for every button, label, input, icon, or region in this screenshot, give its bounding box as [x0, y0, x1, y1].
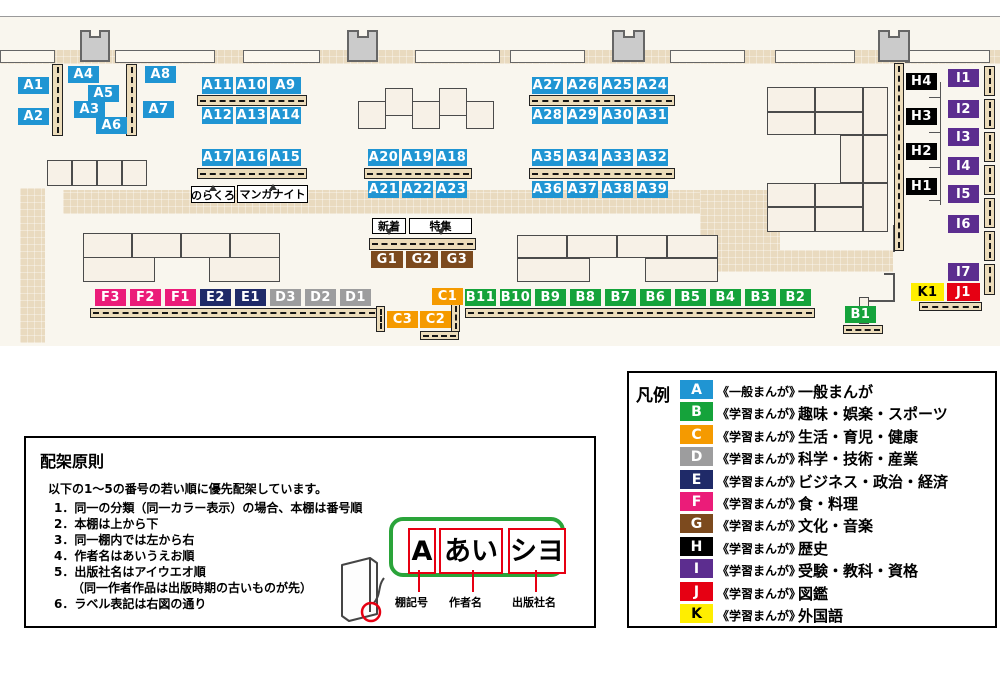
table	[122, 160, 147, 186]
table	[517, 235, 567, 258]
wall-segment	[0, 50, 55, 63]
table	[617, 235, 667, 258]
legend-chip-B: B	[680, 402, 713, 421]
table	[567, 235, 617, 258]
shelf-label-A9: A9	[270, 77, 301, 94]
label-caption: 出版社名	[512, 594, 556, 610]
shelf-label-C1: C1	[432, 288, 463, 305]
table	[863, 135, 888, 183]
bookcase	[451, 303, 460, 332]
table	[767, 112, 815, 135]
legend-category: 文化・音楽	[798, 515, 873, 536]
shelf-label-A10: A10	[236, 77, 267, 94]
table	[767, 183, 815, 207]
legend-category: 趣味・娯楽・スポーツ	[798, 403, 948, 424]
bookcase	[984, 165, 995, 195]
label-caption: 作者名	[449, 594, 482, 610]
table	[815, 207, 863, 232]
legend-category: 受験・教科・資格	[798, 560, 918, 581]
shelf-label-B8: B8	[570, 289, 601, 306]
principles-title: 配架原則	[40, 448, 104, 472]
table	[767, 207, 815, 232]
bookcase	[197, 168, 307, 179]
shelf-label-A14: A14	[270, 107, 301, 124]
shelf-label-C2: C2	[420, 311, 451, 328]
legend-chip-F: F	[680, 492, 713, 511]
table	[667, 235, 718, 258]
shelf-label-A31: A31	[637, 107, 668, 124]
shelf-label-I7: I7	[948, 263, 979, 281]
table	[83, 257, 155, 282]
principles-item: 4．作者名はあいうえお順	[54, 548, 362, 564]
shelf-label-A27: A27	[532, 77, 563, 94]
principles-intro: 以下の1～5の番号の若い順に優先配架しています。	[48, 480, 327, 497]
area-label: 特集	[409, 218, 472, 234]
shelf-label-A26: A26	[567, 77, 598, 94]
shelf-label-B10: B10	[500, 289, 531, 306]
bookcase	[376, 306, 385, 332]
wall-segment	[243, 50, 320, 63]
shelf-label-A16: A16	[236, 149, 267, 166]
shelf-label-A3: A3	[74, 101, 105, 118]
shelving-principles-box: 配架原則 以下の1～5の番号の若い順に優先配架しています。 1．同一の分類（同一…	[24, 436, 596, 628]
shelf-label-B3: B3	[745, 289, 776, 306]
legend-scope: 《学習まんが》	[717, 562, 801, 579]
label-part: A	[408, 528, 436, 574]
table	[72, 160, 97, 186]
table	[385, 88, 413, 116]
wall-segment	[775, 50, 855, 63]
leader-line	[418, 570, 420, 592]
shelf-label-B6: B6	[640, 289, 671, 306]
legend-chip-A: A	[680, 380, 713, 399]
wall-segment	[415, 50, 500, 63]
legend-category: 生活・育児・健康	[798, 426, 918, 447]
shelf-label-F2: F2	[130, 289, 161, 306]
shelf-label-I3: I3	[948, 128, 979, 146]
bookcase	[894, 63, 904, 251]
table	[840, 135, 863, 183]
bookcase	[364, 168, 472, 179]
wall-line	[929, 97, 940, 98]
shelf-label-D2: D2	[305, 289, 336, 306]
shelf-label-A11: A11	[202, 77, 233, 94]
leader-line	[535, 570, 537, 592]
shelf-label-F3: F3	[95, 289, 126, 306]
principles-item: 1．同一の分類（同一カラー表示）の場合、本棚は番号順	[54, 500, 362, 516]
table	[767, 87, 815, 112]
principles-item: 5．出版社名はアイウエオ順	[54, 564, 362, 580]
bookcase	[529, 168, 675, 179]
bookcase	[52, 64, 63, 136]
shelf-label-A36: A36	[532, 181, 563, 198]
table	[517, 258, 590, 282]
table	[83, 233, 132, 258]
bookcase	[197, 95, 307, 106]
bookcase	[843, 325, 883, 334]
shelf-label-A4: A4	[68, 66, 99, 83]
table	[815, 112, 863, 135]
legend-scope: 《一般まんが》	[717, 383, 801, 400]
shelf-label-B2: B2	[780, 289, 811, 306]
wall-line	[929, 167, 940, 168]
shelf-label-I5: I5	[948, 185, 979, 203]
legend-scope: 《学習まんが》	[717, 585, 801, 602]
wall-line	[893, 274, 895, 302]
shelf-label-D3: D3	[270, 289, 301, 306]
legend-category: 食・料理	[798, 493, 858, 514]
shelf-label-I6: I6	[948, 215, 979, 233]
bookcase	[529, 95, 675, 106]
shelf-label-B1: B1	[845, 306, 876, 323]
bookcase	[369, 238, 476, 250]
shelf-label-A25: A25	[602, 77, 633, 94]
bookcase	[984, 132, 995, 162]
bookcase	[984, 66, 995, 96]
wall-line	[868, 300, 895, 302]
label-part: あい	[439, 528, 503, 574]
wall-segment	[510, 50, 585, 63]
legend-category: ビジネス・政治・経済	[798, 471, 948, 492]
pillar	[878, 30, 910, 62]
table	[412, 101, 440, 129]
bookcase	[984, 99, 995, 129]
shelf-label-A18: A18	[436, 149, 467, 166]
table	[47, 160, 72, 186]
legend-chip-H: H	[680, 537, 713, 556]
shelf-label-E2: E2	[200, 289, 231, 306]
shelf-label-I1: I1	[948, 69, 979, 87]
label-part: シヨ	[508, 528, 566, 574]
legend-chip-I: I	[680, 559, 713, 578]
table	[815, 183, 863, 207]
shelf-label-D1: D1	[340, 289, 371, 306]
table	[209, 257, 280, 282]
table	[863, 87, 888, 135]
legend-box: 凡例 A《一般まんが》一般まんがB《学習まんが》趣味・娯楽・スポーツC《学習まん…	[627, 371, 997, 628]
shelf-label-H4: H4	[906, 73, 937, 90]
shelf-label-A15: A15	[270, 149, 301, 166]
shelf-label-A30: A30	[602, 107, 633, 124]
legend-scope: 《学習まんが》	[717, 473, 801, 490]
table	[181, 233, 230, 258]
shelf-label-A21: A21	[368, 181, 399, 198]
shelf-label-A22: A22	[402, 181, 433, 198]
shelf-label-A37: A37	[567, 181, 598, 198]
bookcase	[90, 308, 378, 318]
legend-chip-C: C	[680, 425, 713, 444]
shelf-label-B4: B4	[710, 289, 741, 306]
legend-category: 外国語	[798, 605, 843, 626]
shelf-label-G3: G3	[441, 251, 473, 268]
shelf-label-H2: H2	[906, 143, 937, 160]
shelf-label-F1: F1	[165, 289, 196, 306]
legend-category: 科学・技術・産業	[798, 448, 918, 469]
shelf-label-A39: A39	[637, 181, 668, 198]
shelf-label-J1: J1	[947, 283, 980, 301]
shelf-label-A28: A28	[532, 107, 563, 124]
legend-chip-E: E	[680, 470, 713, 489]
principles-item: 2．本棚は上から下	[54, 516, 362, 532]
legend-scope: 《学習まんが》	[717, 540, 801, 557]
shelf-label-A1: A1	[18, 77, 49, 94]
shelf-label-A33: A33	[602, 149, 633, 166]
shelf-label-A29: A29	[567, 107, 598, 124]
leader-line	[472, 570, 474, 592]
legend-scope: 《学習まんが》	[717, 517, 801, 534]
shelf-label-A6: A6	[96, 117, 127, 134]
shelf-label-C3: C3	[387, 311, 418, 328]
legend-category: 一般まんが	[798, 381, 873, 402]
legend-chip-D: D	[680, 447, 713, 466]
table	[358, 101, 386, 129]
legend-scope: 《学習まんが》	[717, 607, 801, 624]
bookcase	[126, 64, 137, 136]
shelf-label-B9: B9	[535, 289, 566, 306]
table	[863, 183, 888, 232]
principles-item: 6．ラベル表記は右図の通り	[54, 596, 362, 612]
shelf-label-A24: A24	[637, 77, 668, 94]
legend-chip-J: J	[680, 582, 713, 601]
shelf-label-A19: A19	[402, 149, 433, 166]
wall-line	[884, 273, 895, 275]
shelf-label-I2: I2	[948, 100, 979, 118]
legend-chip-G: G	[680, 514, 713, 533]
shelf-label-A20: A20	[368, 149, 399, 166]
shelf-label-G2: G2	[406, 251, 438, 268]
legend-scope: 《学習まんが》	[717, 495, 801, 512]
shelf-label-A23: A23	[436, 181, 467, 198]
legend-category: 図鑑	[798, 583, 828, 604]
legend-scope: 《学習まんが》	[717, 428, 801, 445]
bookcase	[984, 231, 995, 261]
area-label: 新着	[372, 218, 406, 234]
table	[132, 233, 181, 258]
walkway	[20, 188, 45, 343]
shelf-label-A13: A13	[236, 107, 267, 124]
shelf-label-A32: A32	[637, 149, 668, 166]
label-caption: 棚記号	[395, 594, 428, 610]
principles-item: 3．同一棚内では左から右	[54, 532, 362, 548]
wall-line	[929, 132, 940, 133]
shelf-label-B7: B7	[605, 289, 636, 306]
table	[815, 87, 863, 112]
pillar	[347, 30, 378, 62]
wall-segment	[670, 50, 745, 63]
bookcase	[420, 331, 459, 340]
shelf-label-A8: A8	[145, 66, 176, 83]
table	[439, 88, 467, 116]
shelf-label-E1: E1	[235, 289, 266, 306]
shelf-label-H1: H1	[906, 178, 937, 195]
bookcase	[465, 308, 815, 318]
pillar	[80, 30, 110, 62]
wall-segment	[905, 50, 990, 63]
wall-segment	[115, 50, 215, 63]
table	[230, 233, 280, 258]
bookcase	[919, 302, 982, 311]
shelf-label-A35: A35	[532, 149, 563, 166]
map-boundary-line	[0, 16, 1000, 17]
wall-line	[929, 200, 940, 201]
shelf-label-A17: A17	[202, 149, 233, 166]
shelf-label-B5: B5	[675, 289, 706, 306]
book-icon	[332, 550, 394, 628]
area-label: マンガナイト	[237, 185, 308, 203]
area-label: のらくろ	[191, 186, 235, 203]
bookcase	[984, 264, 995, 295]
table	[466, 101, 494, 129]
library-floor-map-page: A1A2A4A5A3A6A8A7A11A10A9A12A13A14A17A16A…	[0, 0, 1000, 700]
table	[645, 258, 718, 282]
bookcase	[984, 198, 995, 228]
legend-title: 凡例	[636, 381, 670, 406]
pillar	[612, 30, 645, 62]
wall-line	[940, 82, 941, 205]
shelf-label-K1: K1	[911, 283, 944, 301]
shelf-label-I4: I4	[948, 157, 979, 175]
shelf-label-A38: A38	[602, 181, 633, 198]
shelf-label-A5: A5	[88, 85, 119, 102]
walkway	[700, 250, 893, 272]
table	[97, 160, 122, 186]
shelf-label-A12: A12	[202, 107, 233, 124]
legend-chip-K: K	[680, 604, 713, 623]
shelf-label-H3: H3	[906, 108, 937, 125]
shelf-label-A7: A7	[143, 101, 174, 118]
legend-category: 歴史	[798, 538, 828, 559]
label-example: Aあいシヨ	[389, 517, 565, 577]
legend-scope: 《学習まんが》	[717, 450, 801, 467]
principles-list: 1．同一の分類（同一カラー表示）の場合、本棚は番号順2．本棚は上から下3．同一棚…	[54, 500, 362, 612]
shelf-label-G1: G1	[371, 251, 403, 268]
principles-item: （同一作者作品は出版時期の古いものが先）	[54, 580, 362, 596]
shelf-label-B11: B11	[465, 289, 496, 306]
shelf-label-A2: A2	[18, 108, 49, 125]
shelf-label-A34: A34	[567, 149, 598, 166]
legend-scope: 《学習まんが》	[717, 405, 801, 422]
